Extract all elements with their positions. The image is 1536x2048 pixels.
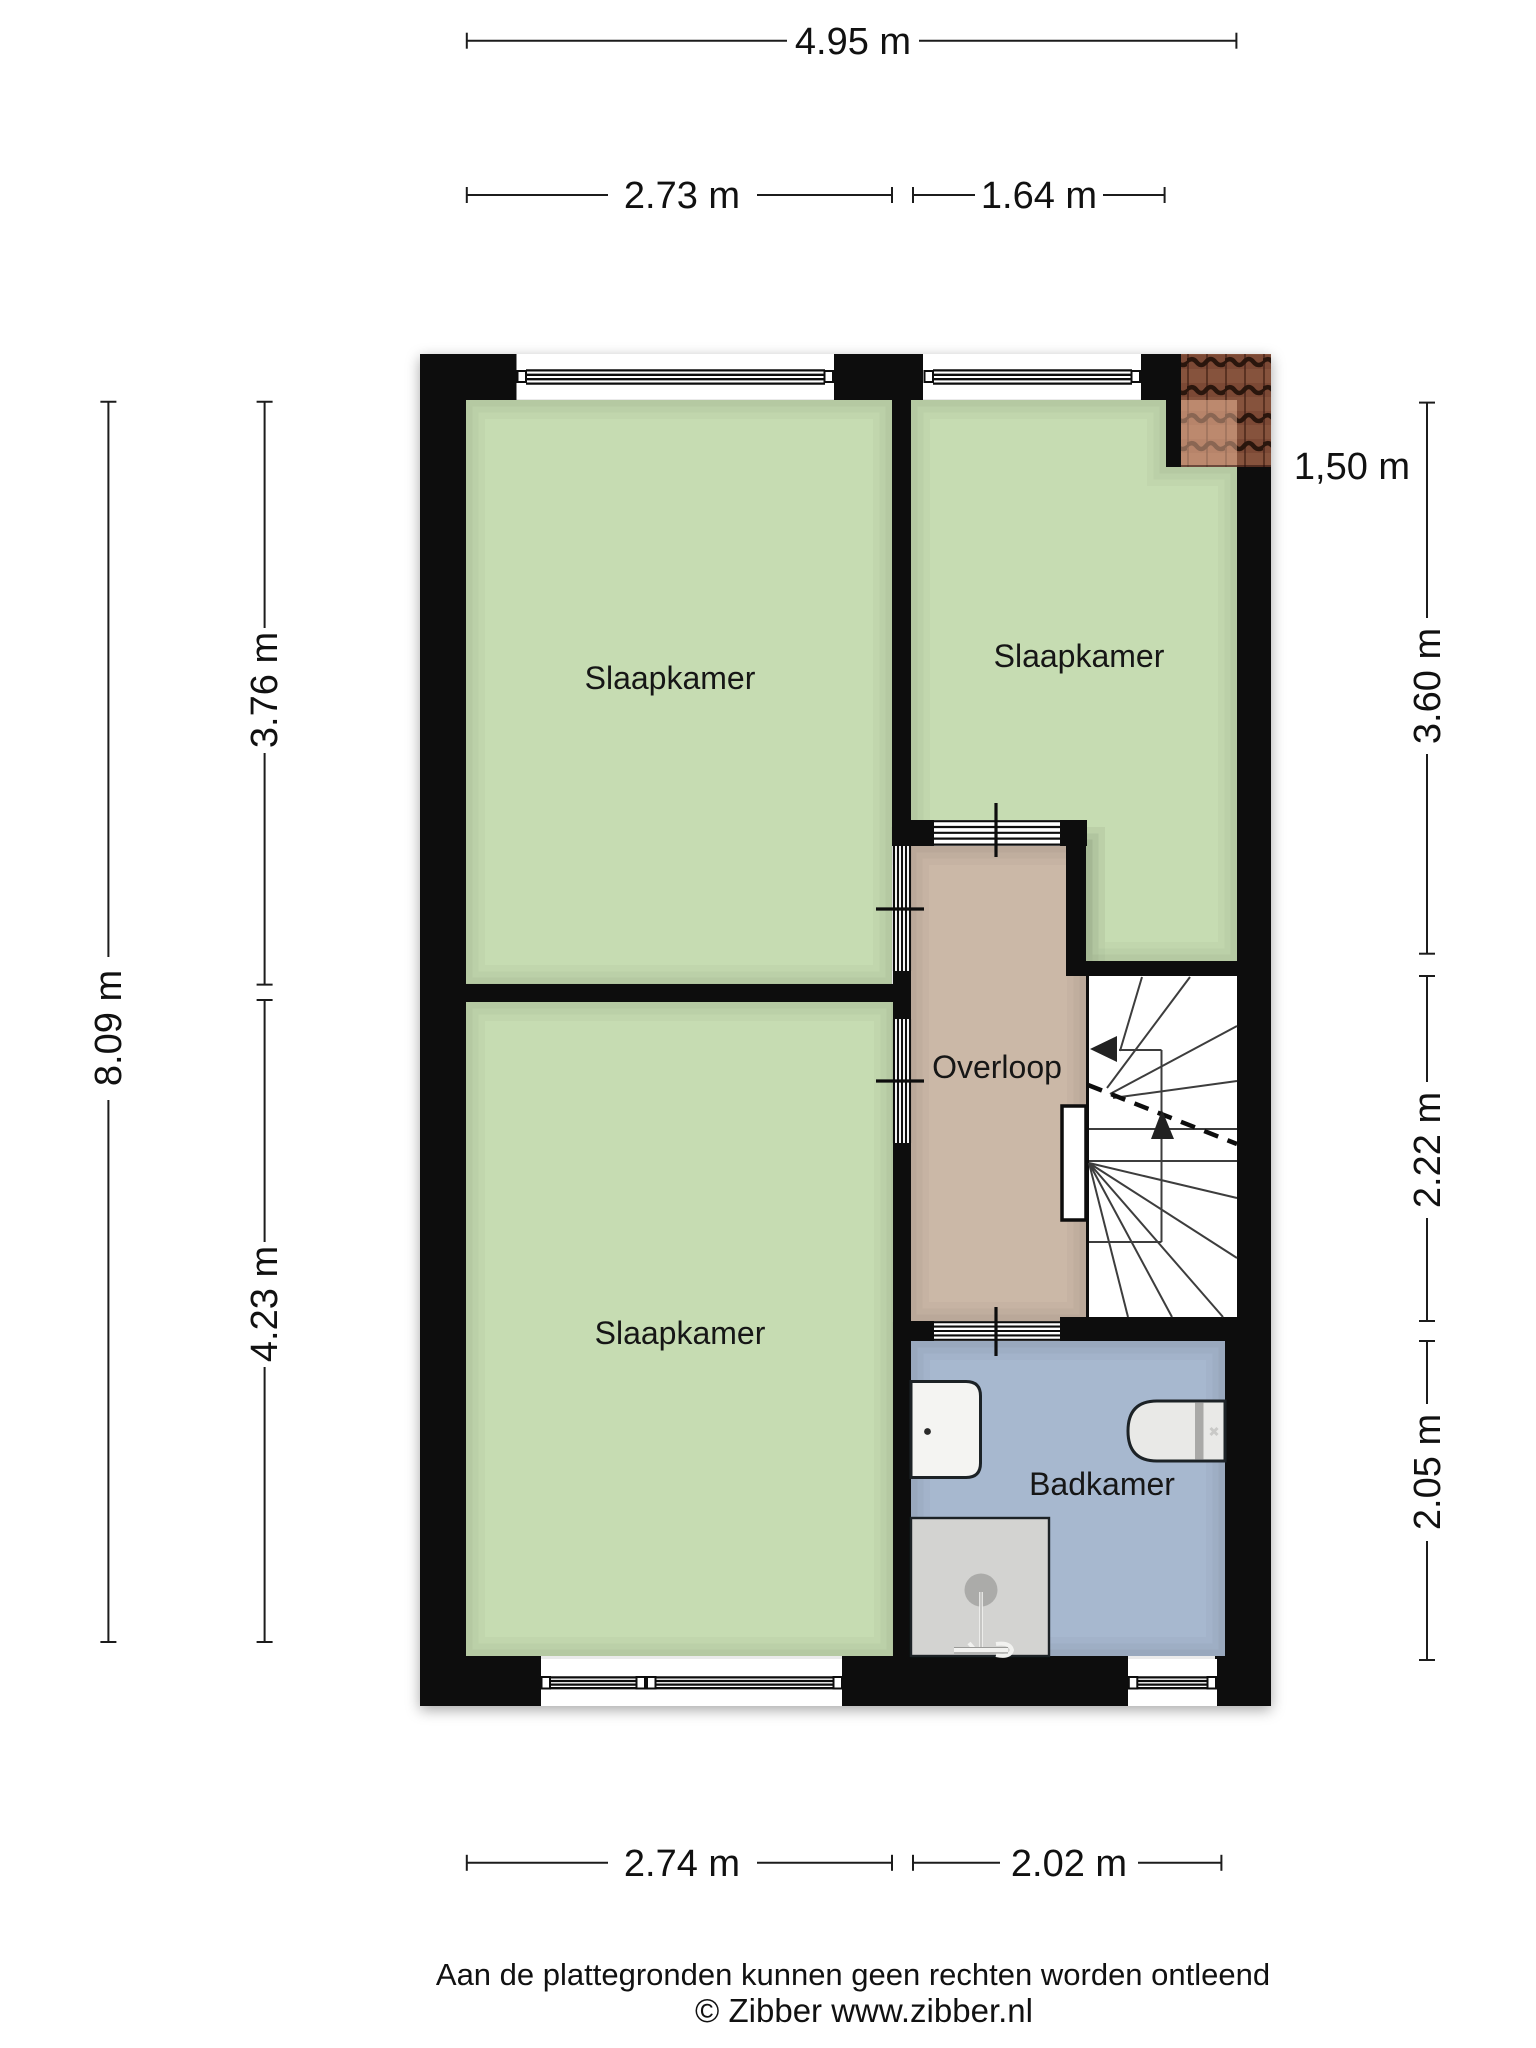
- svg-text:2.02 m: 2.02 m: [1011, 1843, 1127, 1885]
- svg-text:Slaapkamer: Slaapkamer: [595, 1315, 766, 1351]
- svg-text:2.74 m: 2.74 m: [624, 1843, 740, 1885]
- svg-text:Badkamer: Badkamer: [1029, 1466, 1175, 1502]
- svg-text:4.95 m: 4.95 m: [795, 21, 911, 63]
- svg-text:3.76 m: 3.76 m: [244, 632, 286, 748]
- svg-text:8.09 m: 8.09 m: [88, 970, 130, 1086]
- svg-text:2.73 m: 2.73 m: [624, 175, 740, 217]
- svg-text:2.05 m: 2.05 m: [1407, 1414, 1449, 1530]
- svg-text:Aan de plattegronden kunnen ge: Aan de plattegronden kunnen geen rechten…: [436, 1957, 1270, 1992]
- svg-text:Slaapkamer: Slaapkamer: [585, 660, 756, 696]
- svg-text:3.60 m: 3.60 m: [1407, 628, 1449, 744]
- svg-text:Slaapkamer: Slaapkamer: [994, 638, 1165, 674]
- svg-text:4.23 m: 4.23 m: [244, 1246, 286, 1362]
- svg-text:2.22 m: 2.22 m: [1407, 1092, 1449, 1208]
- svg-text:Overloop: Overloop: [932, 1049, 1062, 1085]
- svg-text:1.64 m: 1.64 m: [981, 175, 1097, 217]
- svg-text:1,50 m: 1,50 m: [1294, 446, 1410, 488]
- svg-text:© Zibber www.zibber.nl: © Zibber www.zibber.nl: [695, 1992, 1033, 2029]
